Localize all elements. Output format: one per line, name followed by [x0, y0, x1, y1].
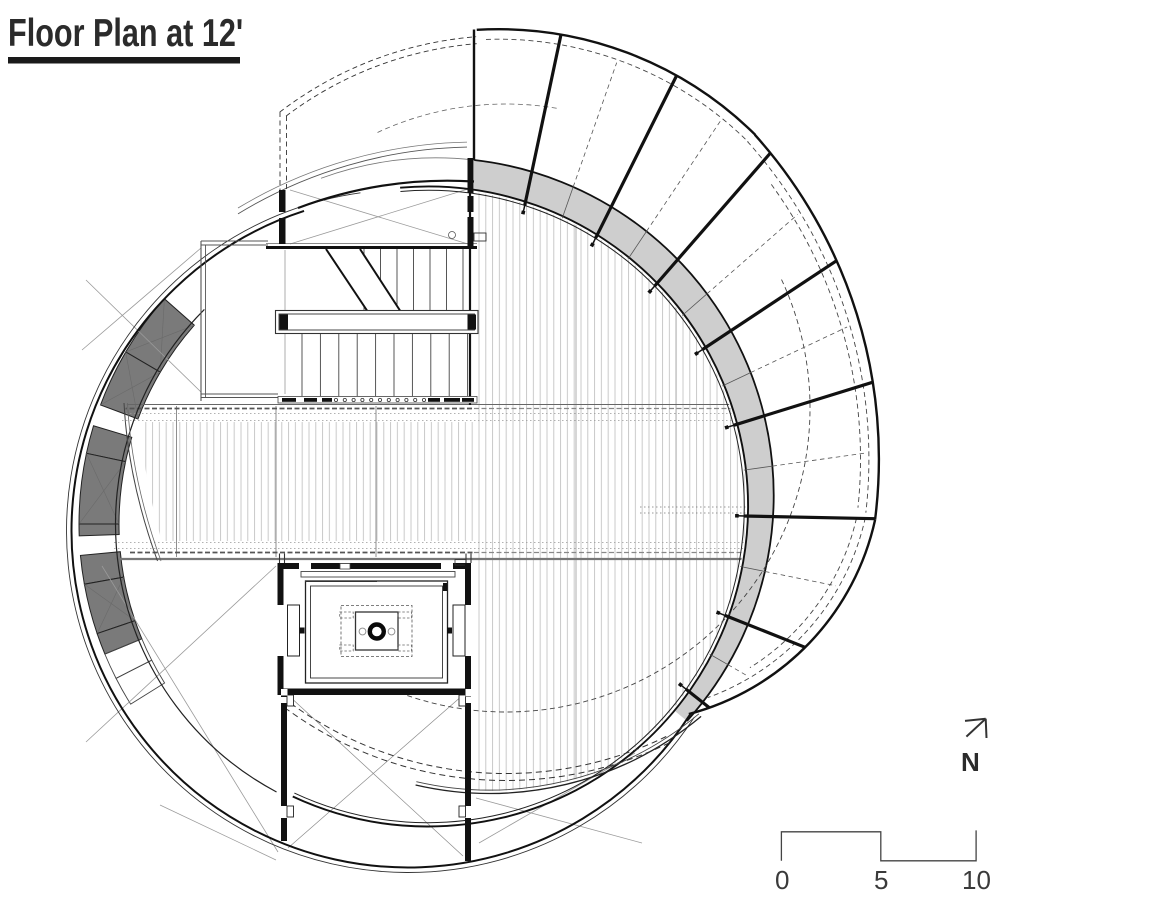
svg-text:Floor Plan at 12': Floor Plan at 12'	[8, 12, 243, 55]
svg-text:N: N	[961, 747, 980, 777]
svg-text:10: 10	[962, 865, 991, 895]
svg-text:5: 5	[874, 865, 888, 895]
svg-text:0: 0	[775, 865, 789, 895]
